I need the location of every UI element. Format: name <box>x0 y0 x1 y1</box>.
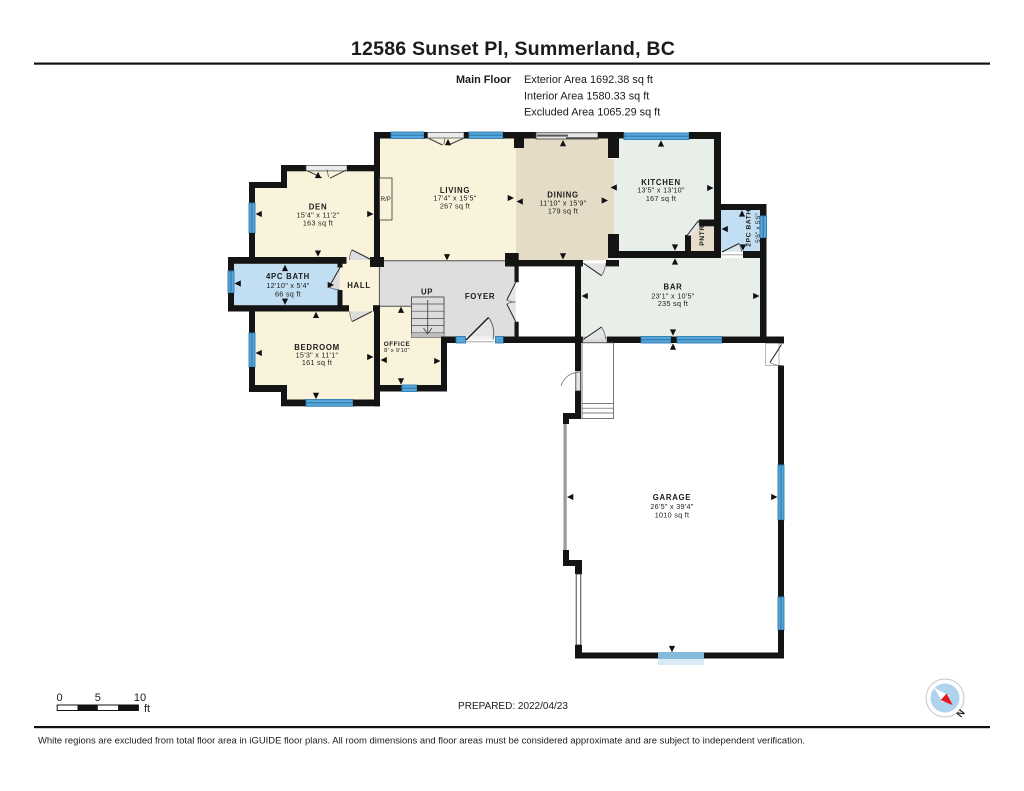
svg-text:267 sq ft: 267 sq ft <box>440 202 470 211</box>
svg-text:2PC BATH: 2PC BATH <box>746 209 753 246</box>
svg-text:OFFICE: OFFICE <box>384 341 411 348</box>
svg-text:Interior Area 1580.33 sq ft: Interior Area 1580.33 sq ft <box>524 90 649 102</box>
svg-text:GARAGE: GARAGE <box>653 493 691 502</box>
svg-text:5'6" x 5'6": 5'6" x 5'6" <box>755 213 762 243</box>
svg-text:12586 Sunset Pl, Summerland, B: 12586 Sunset Pl, Summerland, BC <box>351 38 675 60</box>
svg-text:FOYER: FOYER <box>465 292 495 301</box>
svg-text:26'5" x 39'4": 26'5" x 39'4" <box>650 502 693 511</box>
svg-text:161 sq ft: 161 sq ft <box>302 358 332 367</box>
svg-text:8' x 9'10": 8' x 9'10" <box>384 348 410 354</box>
svg-text:0: 0 <box>56 692 62 704</box>
svg-text:PNTR: PNTR <box>699 225 706 246</box>
svg-text:PREPARED: 2022/04/23: PREPARED: 2022/04/23 <box>458 701 568 712</box>
svg-text:BAR: BAR <box>664 283 683 292</box>
svg-text:179 sq ft: 179 sq ft <box>548 206 578 215</box>
svg-text:ft: ft <box>144 703 150 715</box>
svg-text:White regions are excluded fro: White regions are excluded from total fl… <box>38 736 805 747</box>
svg-text:4PC BATH: 4PC BATH <box>266 272 310 281</box>
svg-text:Excluded Area 1065.29 sq ft: Excluded Area 1065.29 sq ft <box>524 107 660 119</box>
svg-text:Exterior Area 1692.38 sq ft: Exterior Area 1692.38 sq ft <box>524 74 653 86</box>
svg-text:HALL: HALL <box>347 281 371 290</box>
svg-text:163 sq ft: 163 sq ft <box>303 219 333 228</box>
svg-text:1010 sq ft: 1010 sq ft <box>655 511 690 520</box>
svg-text:UP: UP <box>421 287 433 296</box>
svg-text:R/P: R/P <box>381 197 391 203</box>
svg-text:167 sq ft: 167 sq ft <box>646 194 676 203</box>
svg-text:66 sq ft: 66 sq ft <box>275 290 301 299</box>
svg-text:5: 5 <box>95 692 101 704</box>
svg-text:235 sq ft: 235 sq ft <box>658 299 688 308</box>
svg-text:Main Floor: Main Floor <box>456 74 512 86</box>
